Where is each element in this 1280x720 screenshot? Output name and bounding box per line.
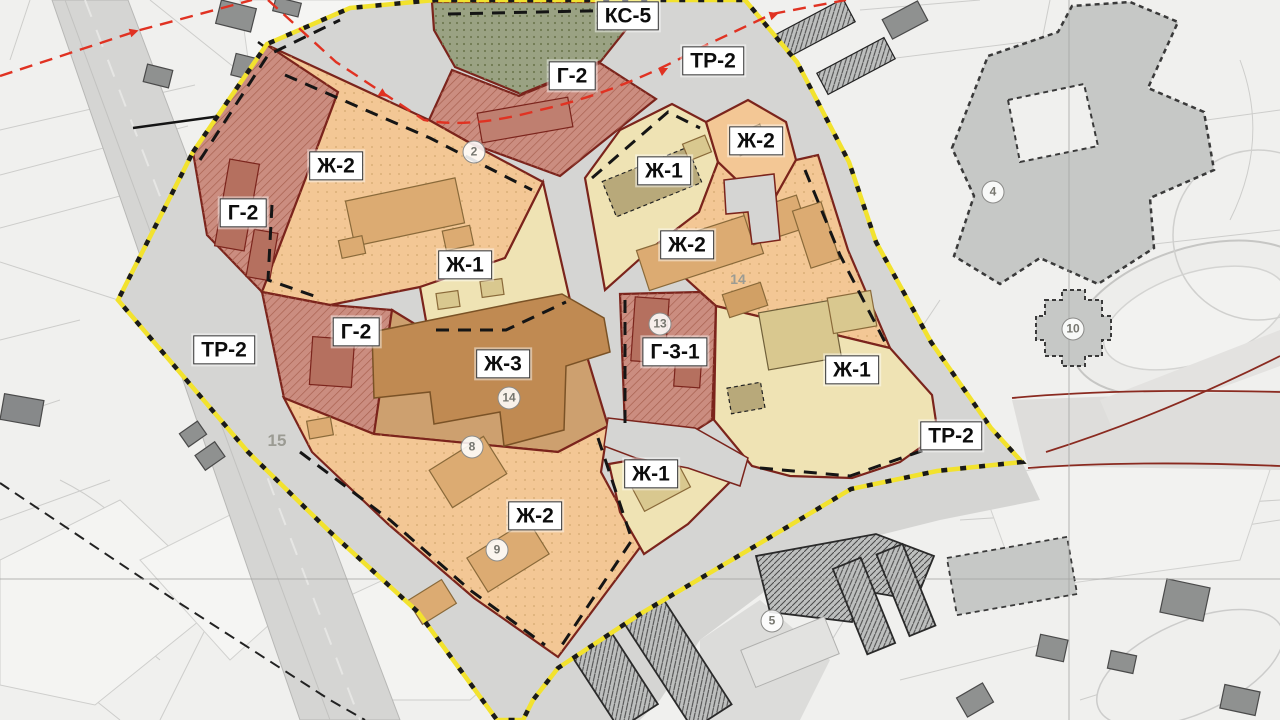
- zone-label-zh2-ne-small: Ж-2: [729, 126, 783, 155]
- marker-circle-8: 8: [461, 436, 484, 459]
- road-label-tr2-north: ТР-2: [682, 46, 744, 75]
- marker-circle-2: 2: [463, 141, 486, 164]
- zone-label-zh2-south: Ж-2: [508, 501, 562, 530]
- zone-label-g2-mid: Г-2: [333, 317, 380, 346]
- zone-label-zh2-nw: Ж-2: [309, 151, 363, 180]
- zone-label-g2-top: Г-2: [549, 61, 596, 90]
- marker-circle-13: 13: [649, 313, 672, 336]
- road-label-tr2-west: ТР-2: [193, 335, 255, 364]
- zone-label-g2-west: Г-2: [220, 198, 267, 227]
- zone-label-zh1-ne: Ж-1: [637, 156, 691, 185]
- zoning-map: КС-5 ТР-2 Г-2 Ж-2 Ж-1 Ж-2 Г-2 Ж-2 Ж-1 Г-…: [0, 0, 1280, 720]
- road-label-tr2-east: ТР-2: [920, 421, 982, 450]
- zone-label-zh1-east: Ж-1: [825, 355, 879, 384]
- marker-circle-4: 4: [982, 181, 1005, 204]
- marker-circle-10: 10: [1062, 318, 1085, 341]
- zone-label-zh2-ne: Ж-2: [660, 230, 714, 259]
- zone-label-g31: Г-3-1: [642, 337, 707, 366]
- zone-label-zh3: Ж-3: [476, 349, 530, 378]
- marker-circle-14: 14: [498, 387, 521, 410]
- ground-number-14: 14: [730, 271, 746, 287]
- ground-number-15: 15: [268, 431, 287, 451]
- map-canvas: [0, 0, 1280, 720]
- marker-circle-9: 9: [486, 539, 509, 562]
- zone-label-zh1-south: Ж-1: [624, 459, 678, 488]
- marker-circle-5: 5: [761, 610, 784, 633]
- zone-label-zh1-mid: Ж-1: [438, 250, 492, 279]
- zone-label-ks5: КС-5: [597, 1, 659, 30]
